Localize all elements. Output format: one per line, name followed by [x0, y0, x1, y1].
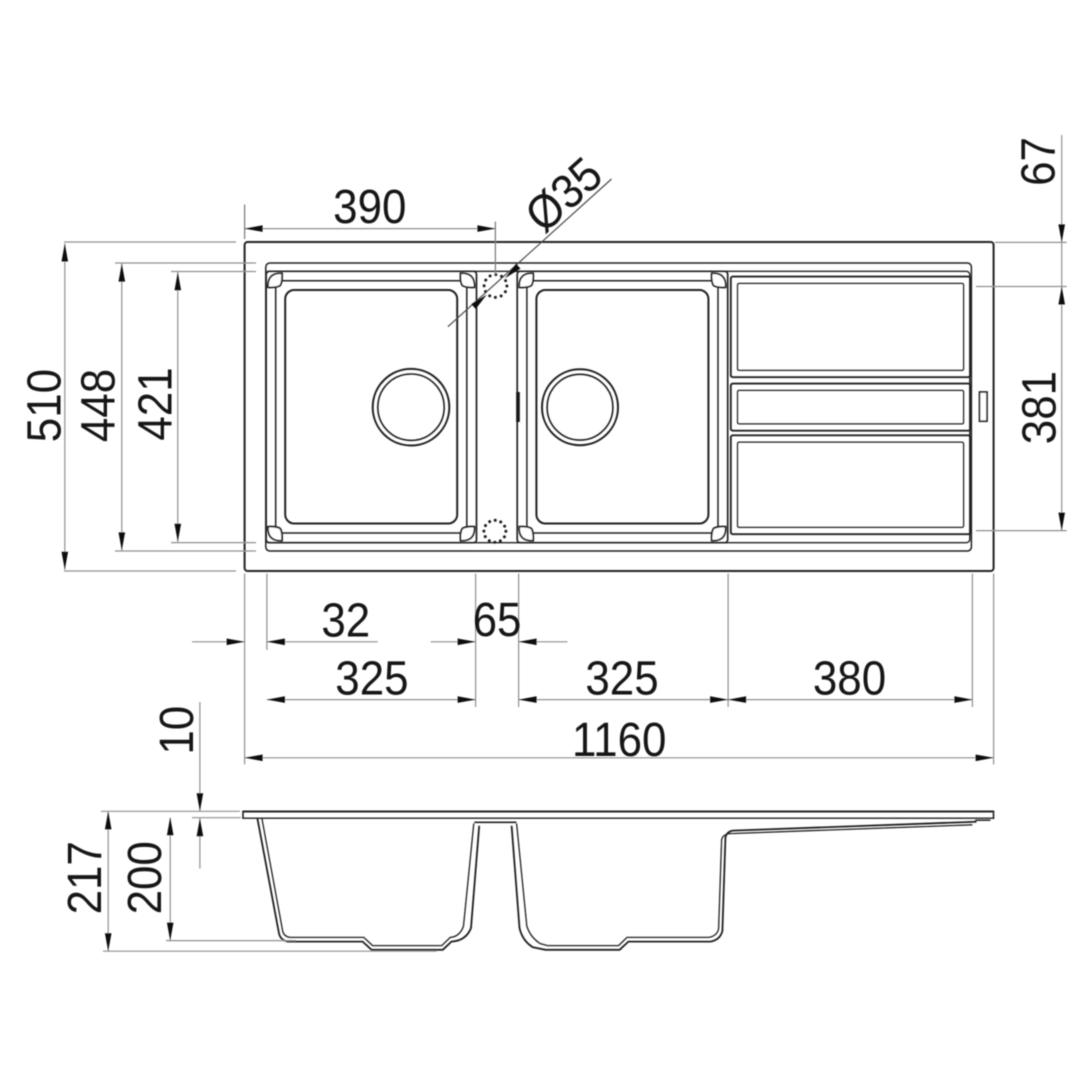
- svg-text:380: 380: [813, 651, 886, 705]
- svg-text:510: 510: [17, 369, 71, 442]
- svg-text:65: 65: [473, 592, 522, 646]
- svg-text:32: 32: [321, 593, 370, 647]
- svg-text:200: 200: [117, 841, 171, 914]
- svg-text:390: 390: [333, 179, 406, 233]
- svg-text:421: 421: [128, 367, 182, 440]
- svg-text:217: 217: [57, 841, 111, 914]
- svg-text:1160: 1160: [572, 712, 666, 766]
- svg-text:325: 325: [335, 651, 408, 705]
- svg-text:10: 10: [149, 706, 203, 755]
- svg-text:381: 381: [1011, 371, 1065, 444]
- svg-text:448: 448: [71, 369, 125, 442]
- svg-text:67: 67: [1011, 137, 1065, 186]
- svg-text:325: 325: [585, 651, 658, 705]
